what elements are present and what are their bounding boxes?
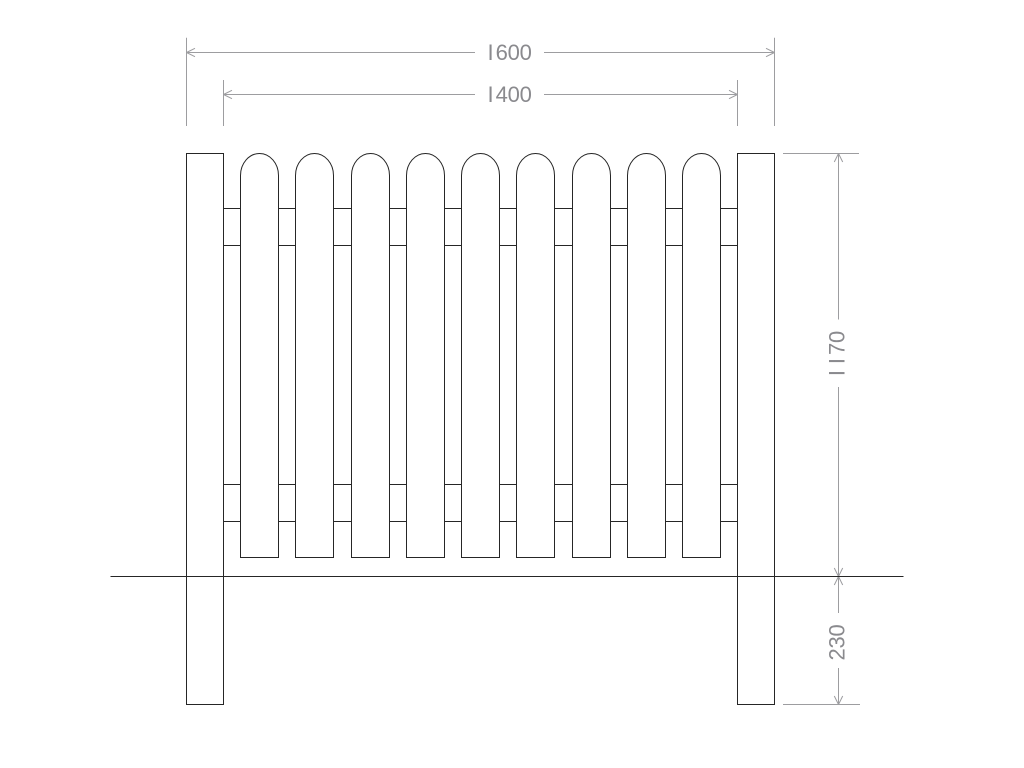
svg-text:I400: I400 [488, 82, 532, 107]
svg-text:II70: II70 [825, 331, 850, 376]
svg-text:230: 230 [825, 624, 850, 660]
svg-text:I600: I600 [488, 40, 532, 65]
